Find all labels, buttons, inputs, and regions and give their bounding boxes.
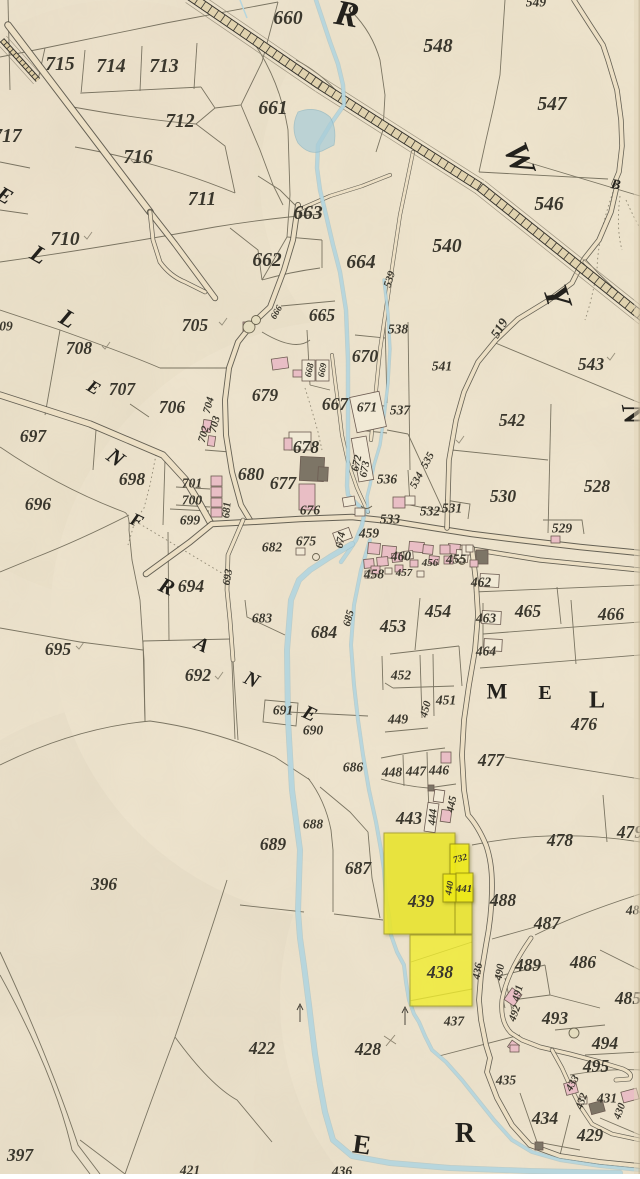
svg-text:675: 675: [296, 534, 317, 549]
svg-text:711: 711: [188, 189, 216, 210]
svg-text:687: 687: [345, 858, 373, 878]
svg-text:493: 493: [541, 1008, 569, 1028]
svg-text:661: 661: [258, 98, 287, 119]
svg-text:678: 678: [293, 437, 320, 457]
svg-text:549: 549: [526, 0, 547, 10]
svg-text:487: 487: [533, 913, 562, 933]
svg-text:462: 462: [470, 575, 492, 590]
svg-text:446: 446: [428, 763, 450, 778]
svg-text:434: 434: [531, 1108, 559, 1128]
svg-text:665: 665: [309, 305, 336, 325]
svg-text:438: 438: [426, 962, 454, 982]
svg-text:E: E: [538, 682, 551, 704]
svg-text:670: 670: [352, 346, 379, 366]
svg-text:452: 452: [390, 668, 412, 683]
svg-text:458: 458: [363, 567, 385, 582]
svg-text:684: 684: [311, 622, 338, 642]
svg-text:694: 694: [178, 576, 205, 596]
svg-text:C: C: [348, 4, 356, 16]
svg-text:696: 696: [25, 494, 52, 514]
svg-text:530: 530: [490, 486, 517, 506]
svg-text:710: 710: [50, 229, 80, 250]
svg-text:677: 677: [270, 473, 298, 493]
svg-text:448: 448: [381, 765, 403, 780]
svg-text:686: 686: [343, 760, 364, 775]
svg-text:682: 682: [262, 540, 283, 555]
svg-text:447: 447: [405, 764, 428, 779]
svg-text:495: 495: [582, 1056, 610, 1076]
svg-text:466: 466: [597, 604, 625, 624]
svg-text:454: 454: [424, 601, 452, 621]
svg-text:428: 428: [354, 1039, 382, 1059]
svg-text:489: 489: [514, 955, 542, 975]
svg-text:533: 533: [380, 512, 401, 527]
svg-text:532: 532: [420, 504, 441, 519]
svg-text:463: 463: [475, 611, 497, 626]
svg-text:699: 699: [180, 513, 201, 528]
svg-text:449: 449: [387, 712, 409, 727]
svg-text:435: 435: [495, 1073, 517, 1088]
svg-text:459: 459: [358, 526, 380, 541]
svg-text:443: 443: [395, 808, 423, 828]
svg-text:488: 488: [489, 890, 517, 910]
svg-text:476: 476: [570, 714, 598, 734]
svg-text:671: 671: [357, 400, 377, 415]
svg-text:477: 477: [477, 750, 506, 770]
svg-text:529: 529: [552, 521, 573, 536]
svg-text:436: 436: [331, 1164, 353, 1174]
svg-text:528: 528: [584, 476, 611, 496]
svg-text:692: 692: [185, 665, 212, 685]
svg-text:676: 676: [300, 503, 321, 518]
svg-text:712: 712: [165, 111, 195, 132]
svg-text:453: 453: [379, 616, 407, 636]
svg-text:683: 683: [252, 611, 273, 626]
svg-text:667: 667: [322, 394, 350, 414]
svg-text:662: 662: [252, 250, 282, 271]
svg-text:397: 397: [6, 1145, 35, 1165]
svg-text:547: 547: [537, 94, 568, 115]
svg-text:542: 542: [499, 410, 526, 430]
svg-text:465: 465: [514, 601, 542, 621]
svg-text:715: 715: [45, 54, 75, 75]
svg-text:688: 688: [303, 817, 324, 832]
svg-text:531: 531: [442, 501, 462, 516]
svg-text:464: 464: [475, 644, 497, 659]
svg-text:540: 540: [432, 236, 462, 257]
svg-text:664: 664: [346, 252, 376, 273]
svg-text:421: 421: [179, 1163, 200, 1174]
svg-text:548: 548: [423, 36, 453, 57]
svg-text:429: 429: [576, 1125, 604, 1145]
svg-text:714: 714: [96, 56, 126, 77]
svg-text:691: 691: [273, 703, 293, 718]
svg-text:680: 680: [238, 464, 265, 484]
svg-text:460: 460: [390, 549, 412, 564]
svg-text:707: 707: [109, 379, 137, 399]
svg-text:681: 681: [220, 501, 233, 518]
svg-text:486: 486: [569, 952, 597, 972]
svg-text:456: 456: [421, 557, 439, 569]
svg-text:690: 690: [303, 723, 324, 738]
svg-text:444: 444: [426, 808, 440, 827]
svg-text:M: M: [487, 679, 508, 704]
svg-text:09: 09: [0, 319, 13, 334]
svg-text:713: 713: [149, 56, 179, 77]
svg-text:451: 451: [435, 693, 456, 708]
svg-text:439: 439: [407, 891, 435, 911]
svg-text:437: 437: [443, 1014, 466, 1029]
svg-text:541: 541: [432, 359, 452, 374]
svg-text:422: 422: [248, 1038, 276, 1058]
svg-text:478: 478: [546, 830, 574, 850]
svg-text:537: 537: [390, 403, 412, 418]
svg-text:441: 441: [455, 883, 473, 895]
svg-text:700: 700: [182, 493, 203, 508]
svg-text:716: 716: [123, 147, 153, 168]
svg-text:457: 457: [395, 567, 413, 579]
svg-text:701: 701: [182, 476, 202, 491]
svg-text:431: 431: [596, 1091, 617, 1106]
svg-text:L: L: [589, 687, 605, 713]
svg-text:689: 689: [260, 834, 287, 854]
svg-text:706: 706: [159, 397, 186, 417]
svg-text:396: 396: [90, 874, 118, 894]
svg-text:543: 543: [578, 354, 605, 374]
svg-text:679: 679: [252, 385, 279, 405]
svg-text:698: 698: [119, 469, 146, 489]
svg-text:697: 697: [20, 426, 48, 446]
svg-text:494: 494: [591, 1033, 619, 1053]
svg-text:705: 705: [182, 315, 209, 335]
svg-text:455: 455: [445, 552, 467, 567]
svg-text:R: R: [455, 1118, 476, 1149]
svg-text:717: 717: [0, 126, 23, 147]
svg-text:536: 536: [377, 472, 398, 487]
svg-text:538: 538: [388, 322, 409, 337]
svg-text:695: 695: [45, 639, 72, 659]
svg-text:546: 546: [534, 194, 564, 215]
svg-text:660: 660: [273, 8, 303, 29]
svg-text:663: 663: [293, 203, 323, 224]
svg-text:708: 708: [66, 338, 93, 358]
